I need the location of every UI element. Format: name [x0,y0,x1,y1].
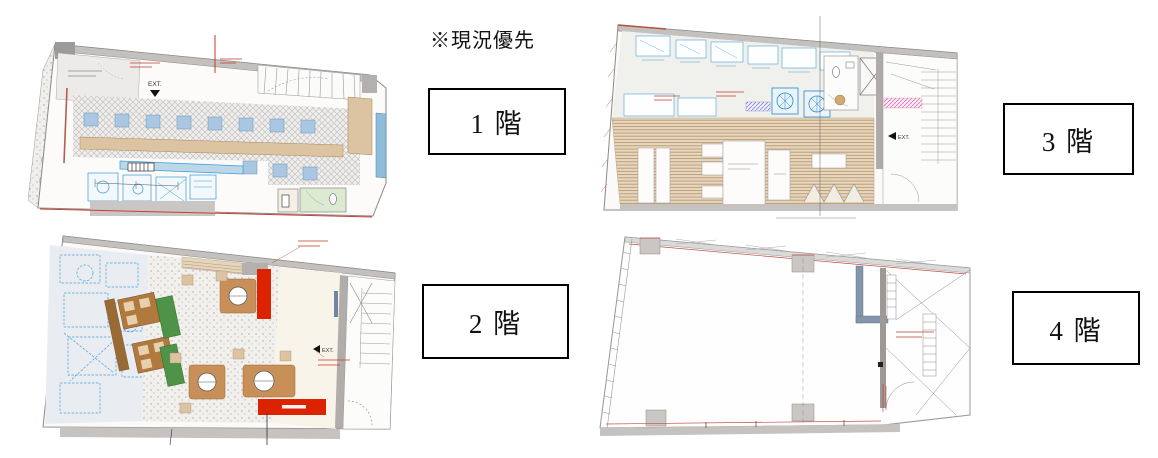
floor1-drawing: EXT. [28,33,400,225]
floor2-drawing: EXT. [30,233,402,447]
staircase [334,275,395,429]
floorplan-sheet: ※現況優先 [0,0,1158,458]
floor1-plan: EXT. [28,33,400,225]
stair-wall [876,52,883,169]
floor3-drawing: EXT. [596,14,976,220]
red-wall-panel [257,269,271,319]
floor4-drawing [596,228,988,442]
floor3-label: 3 階 [1042,120,1095,159]
marker-dot [878,362,883,367]
round-table [243,365,295,397]
floor2-plan: EXT. [30,233,402,447]
floor4-plan [596,228,988,442]
bottom-wall [90,201,215,216]
corner-column [362,75,377,93]
exit-label: EXT. [898,135,910,141]
floor4-label: 4 階 [1049,309,1102,348]
sink-unit [772,88,798,114]
grill-hatch [128,163,154,171]
exit-label: EXT. [322,348,334,354]
priority-note: ※現況優先 [430,24,535,53]
toilet-room [278,188,346,212]
hatched-strip [746,102,770,111]
floor4-label-box: 4 階 [1012,291,1140,365]
floor1-label-box: 1 階 [428,88,566,155]
floor3-label-box: 3 階 [1003,103,1134,175]
side-counter [348,97,372,155]
floor3-plan: EXT. [596,14,976,220]
exit-label: EXT. [148,81,162,88]
floor1-label: 1 階 [470,102,523,141]
bottom-wall [60,427,340,439]
round-table [189,365,225,399]
window-counter [376,113,386,178]
red-signage [258,399,326,415]
folding-seats [804,184,864,202]
bottom-wall [620,204,957,210]
stool [835,95,845,105]
floor2-label: 2 階 [469,302,522,341]
staircase [883,53,957,210]
existing-kitchen-zone [45,245,148,424]
round-table [220,279,256,313]
floor2-label-box: 2 階 [422,284,569,359]
